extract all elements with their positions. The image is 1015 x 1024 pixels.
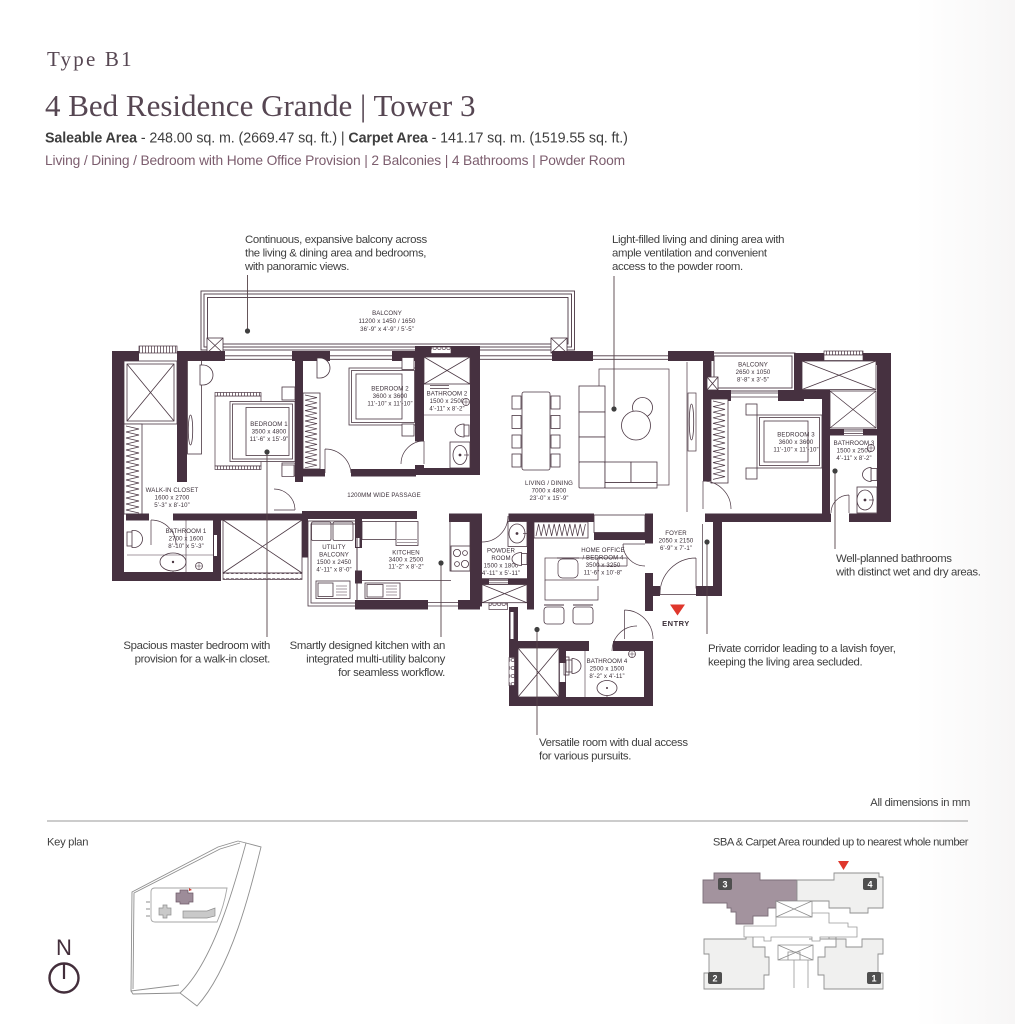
svg-text:2650 x 1050: 2650 x 1050 [736,369,771,376]
svg-text:11’-6” x 15’-9”: 11’-6” x 15’-9” [250,436,289,443]
svg-text:BEDROOM 3: BEDROOM 3 [777,432,815,439]
svg-text:ENTRY: ENTRY [662,619,690,628]
svg-text:BEDROOM 1: BEDROOM 1 [250,421,288,428]
svg-text:11’-2” x 8’-2”: 11’-2” x 8’-2” [388,564,423,571]
svg-text:access to the powder room.: access to the powder room. [612,261,743,273]
svg-text:BALCONY: BALCONY [738,362,768,369]
svg-text:Key plan: Key plan [47,837,88,849]
svg-text:3500 x 4800: 3500 x 4800 [252,429,287,436]
svg-text:Saleable Area - 248.00 sq. m.: Saleable Area - 248.00 sq. m. (2669.47 s… [45,131,628,147]
svg-text:1500 x 2500: 1500 x 2500 [837,448,872,455]
svg-text:11200 x 1450 / 1650: 11200 x 1450 / 1650 [358,318,416,325]
svg-text:HOME OFFICE: HOME OFFICE [581,547,624,554]
svg-text:4’-11” x 8’-0”: 4’-11” x 8’-0” [316,567,351,574]
svg-text:BATHROOM 4: BATHROOM 4 [587,658,628,665]
svg-text:7000 x 4800: 7000 x 4800 [532,488,567,495]
svg-text:Continuous, expansive balcony: Continuous, expansive balcony across [245,234,427,246]
svg-text:2500 x 1500: 2500 x 1500 [590,666,625,673]
svg-text:for seamless workflow.: for seamless workflow. [338,667,445,679]
svg-text:BATHROOM 2: BATHROOM 2 [427,391,468,398]
svg-text:Living / Dining / Bedroom with: Living / Dining / Bedroom with Home Offi… [45,153,625,168]
svg-text:the living & dining area and b: the living & dining area and bedrooms, [245,248,426,260]
svg-text:with panoramic views.: with panoramic views. [244,261,349,273]
svg-text:5’-3” x 8’-10”: 5’-3” x 8’-10” [154,502,190,509]
svg-text:1: 1 [871,974,876,984]
svg-text:23’-0” x 15’-9”: 23’-0” x 15’-9” [529,495,568,502]
svg-text:4’-11” x 8’-2”: 4’-11” x 8’-2” [836,455,871,462]
svg-text:Type B1: Type B1 [47,47,134,71]
svg-text:FOYER: FOYER [665,530,687,537]
svg-text:provision for a walk-in closet: provision for a walk-in closet. [135,654,271,666]
svg-text:Light-filled living and dining: Light-filled living and dining area with [612,234,784,246]
svg-text:1600 x 2700: 1600 x 2700 [155,495,190,502]
svg-text:4: 4 [867,880,872,890]
svg-text:Versatile room with dual acces: Versatile room with dual access [539,737,688,749]
svg-text:3400 x 2500: 3400 x 2500 [389,557,424,564]
svg-text:2050 x 2150: 2050 x 2150 [659,538,694,545]
svg-text:Smartly designed kitchen with: Smartly designed kitchen with an [290,640,445,652]
svg-text:WALK-IN CLOSET: WALK-IN CLOSET [146,487,199,494]
svg-text:BEDROOM 2: BEDROOM 2 [371,386,409,393]
svg-text:3600 x 3600: 3600 x 3600 [373,393,408,400]
svg-text:/ BEDROOM 4: / BEDROOM 4 [582,555,624,562]
svg-text:4’-11” x 8’-2”: 4’-11” x 8’-2” [429,406,464,413]
svg-text:8’-2” x 4’-11”: 8’-2” x 4’-11” [589,673,624,680]
svg-text:8’-8” x 3’-5”: 8’-8” x 3’-5” [737,377,769,384]
svg-text:KITCHEN: KITCHEN [392,550,419,557]
svg-text:POWDER: POWDER [487,548,516,555]
svg-text:11’-10” x 11’-10”: 11’-10” x 11’-10” [773,447,818,454]
svg-text:6’-9” x 7’-1”: 6’-9” x 7’-1” [660,545,692,552]
svg-text:BALCONY: BALCONY [319,552,349,559]
svg-text:1500 x 2500: 1500 x 2500 [430,398,465,405]
svg-text:for various pursuits.: for various pursuits. [539,751,631,763]
svg-text:LIVING / DINING: LIVING / DINING [525,480,573,487]
svg-text:ample ventilation and convenie: ample ventilation and convenient [612,248,768,260]
svg-text:2: 2 [712,974,717,984]
svg-text:1500 x 2450: 1500 x 2450 [317,559,352,566]
svg-text:3: 3 [722,880,727,890]
svg-text:with distinct wet and dry area: with distinct wet and dry areas. [835,567,981,579]
svg-text:4 Bed Residence Grande | Tower: 4 Bed Residence Grande | Tower 3 [45,88,475,123]
svg-text:UTILITY: UTILITY [322,544,345,551]
svg-text:3600 x 3600: 3600 x 3600 [779,439,814,446]
svg-text:integrated multi-utility balco: integrated multi-utility balcony [306,654,446,666]
svg-text:Private corridor leading to a: Private corridor leading to a lavish foy… [708,643,896,655]
svg-text:1200MM WIDE PASSAGE: 1200MM WIDE PASSAGE [347,492,421,499]
svg-text:N: N [56,935,72,960]
svg-text:1500 x 1800: 1500 x 1800 [484,563,519,570]
svg-text:keeping the living area seclud: keeping the living area secluded. [708,657,863,669]
svg-text:11’-6” x 10’-8”: 11’-6” x 10’-8” [584,570,623,577]
svg-text:SBA & Carpet Area rounded up t: SBA & Carpet Area rounded up to nearest … [713,837,969,849]
svg-text:4’-11” x 5’-11”: 4’-11” x 5’-11” [482,570,520,577]
svg-text:All dimensions in mm: All dimensions in mm [870,797,970,809]
svg-text:BALCONY: BALCONY [372,310,402,317]
svg-text:36’-9” x 4’-9” / 5’-5”: 36’-9” x 4’-9” / 5’-5” [360,326,414,333]
svg-text:3500 x 3250: 3500 x 3250 [586,562,621,569]
svg-text:ROOM: ROOM [491,555,510,562]
svg-text:11’-10” x 11’-10”: 11’-10” x 11’-10” [367,401,412,408]
svg-text:Well-planned bathrooms: Well-planned bathrooms [836,553,952,565]
svg-text:Spacious master bedroom with: Spacious master bedroom with [123,640,270,652]
